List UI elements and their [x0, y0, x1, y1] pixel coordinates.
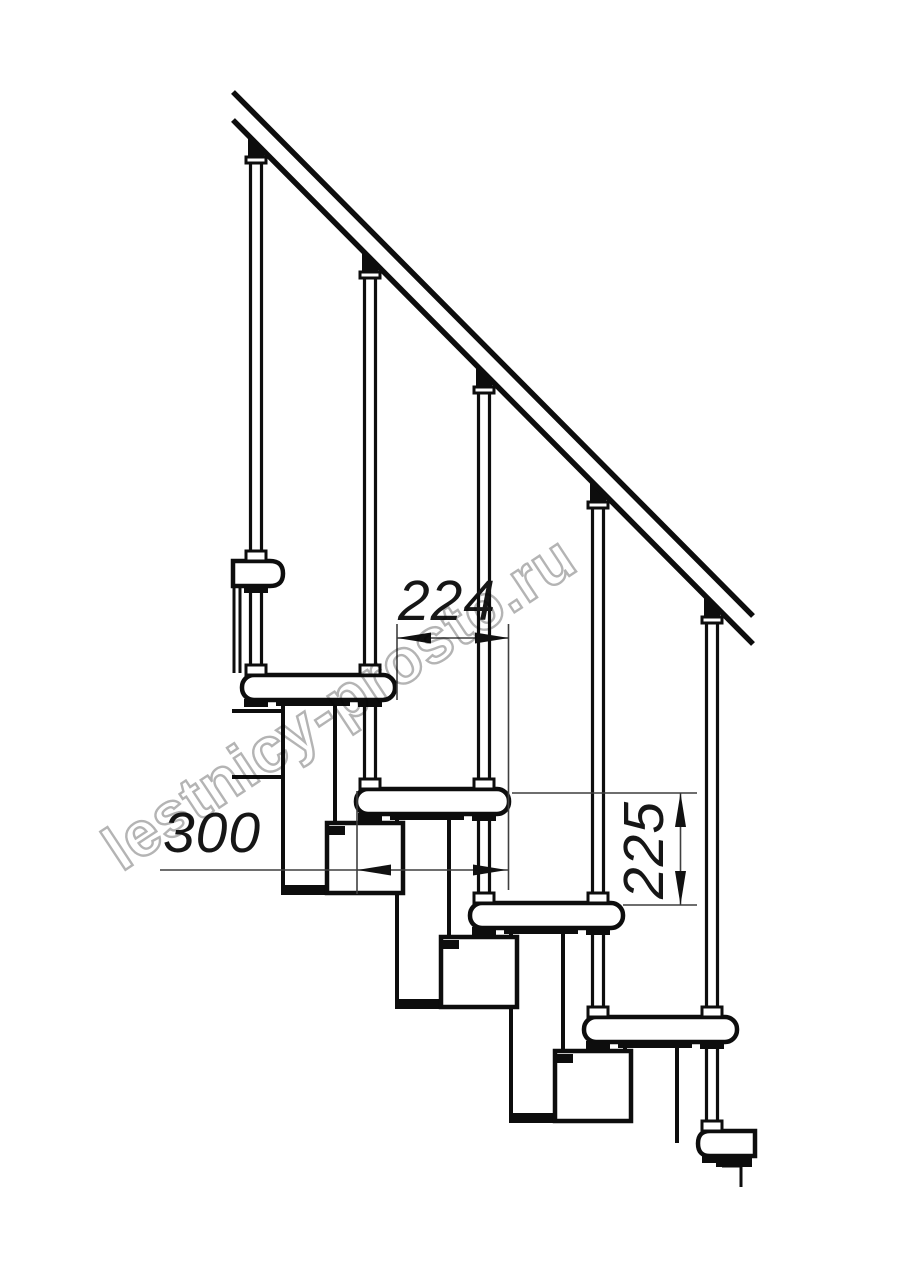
- dimension-label-rise: 225: [612, 801, 676, 900]
- handrail-top-line: [233, 92, 753, 616]
- collar: [588, 1007, 608, 1017]
- collar: [702, 1121, 722, 1131]
- tread-top-partial: [233, 561, 283, 586]
- collar: [588, 893, 608, 903]
- collar: [246, 551, 266, 561]
- tread: [584, 1017, 737, 1042]
- under-pad: [244, 585, 268, 593]
- tread-bottom-partial: [698, 1131, 755, 1156]
- dimension-label-depth: 300: [163, 801, 261, 865]
- collar: [702, 1007, 722, 1017]
- weld-mark: [557, 1054, 573, 1063]
- tread: [470, 903, 623, 928]
- dimension-label-run: 224: [397, 569, 496, 633]
- bottom-cut-bracket: [702, 1155, 752, 1187]
- baluster-tube: [251, 163, 262, 678]
- baluster-tube: [707, 623, 718, 1134]
- handrail: [233, 92, 753, 644]
- handrail-bottom-line: [233, 120, 753, 644]
- under-tread-set: [586, 1041, 724, 1049]
- under-tread-set: [358, 813, 496, 821]
- module-box-partial: [232, 711, 283, 777]
- module-chain: [232, 588, 677, 1143]
- collar: [474, 779, 494, 789]
- cut-edge-lines: [234, 588, 240, 673]
- collar: [360, 779, 380, 789]
- staircase-drawing-canvas: 224 300 225 lestnicy-prosto.ru: [0, 0, 914, 1280]
- under-tread-set: [472, 927, 610, 935]
- collar: [246, 665, 266, 675]
- collar: [360, 665, 380, 675]
- baluster-tube: [593, 508, 604, 1020]
- weld-mark: [329, 826, 345, 835]
- collar: [474, 893, 494, 903]
- tread: [242, 675, 395, 700]
- under-tread-set: [244, 699, 382, 707]
- weld-mark: [443, 940, 459, 949]
- tread: [356, 789, 509, 814]
- baluster-tube: [479, 393, 490, 906]
- baluster-tube: [365, 278, 376, 792]
- staircase-drawing: 224 300 225: [0, 0, 914, 1280]
